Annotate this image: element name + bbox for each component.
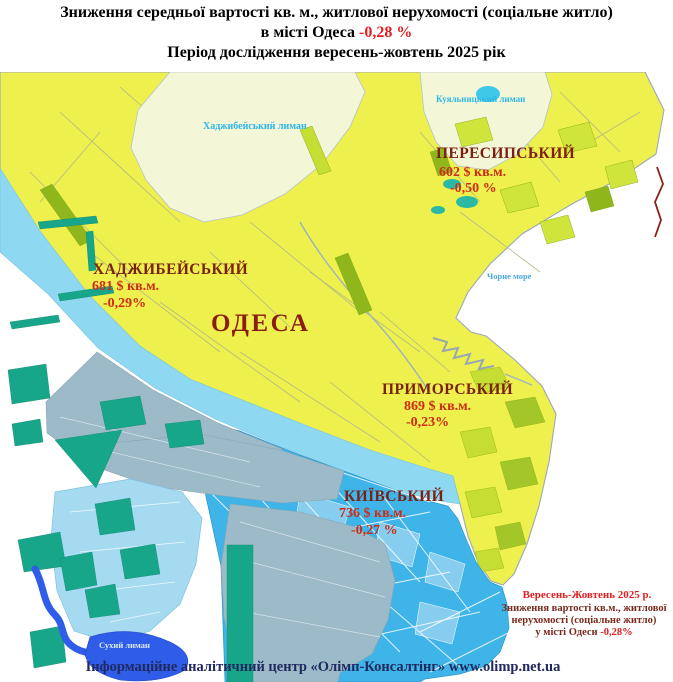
liman-lake	[476, 86, 500, 102]
title-line-1: Зниження середньої вартості кв. м., житл…	[0, 3, 673, 23]
odesa-map: Хаджибейський лиман Куяльницький лиман Ч…	[0, 72, 673, 682]
peresyp-pond	[456, 196, 478, 208]
odesa-map-graphic	[0, 72, 673, 682]
peresyp-pond	[431, 206, 445, 214]
title-line-2-text: в місті Одеса	[261, 24, 359, 41]
title-line-3: Період дослідження вересень-жовтень 2025…	[0, 43, 673, 63]
title-block: Зниження середньої вартості кв. м., житл…	[0, 3, 673, 63]
title-change-value: -0,28 %	[359, 24, 412, 41]
peresyp-pond	[443, 179, 461, 189]
title-line-2: в місті Одеса -0,28 %	[0, 23, 673, 43]
infographic-page: Зниження середньої вартості кв. м., житл…	[0, 0, 673, 682]
footer-credit: Інформаційне аналітичний центр «Олімп-Ко…	[20, 659, 626, 676]
